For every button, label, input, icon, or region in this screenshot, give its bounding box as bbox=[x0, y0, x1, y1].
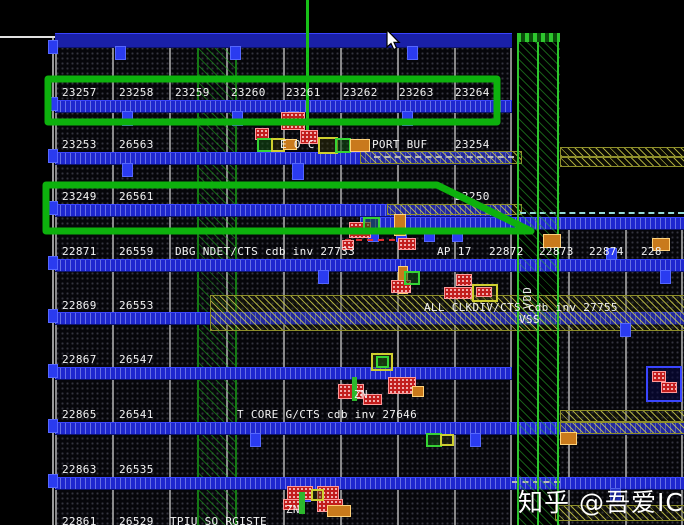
track-number: 22874 bbox=[589, 246, 624, 258]
strap-top-cap bbox=[517, 33, 560, 42]
route-bar bbox=[560, 410, 684, 422]
marker-cell bbox=[404, 271, 420, 285]
track-number: 23259 bbox=[175, 87, 210, 99]
eco-cell bbox=[661, 382, 677, 393]
marker-cell bbox=[560, 432, 577, 445]
marker-cell bbox=[311, 489, 324, 501]
instance-name: TPIU SO RGISTE bbox=[170, 516, 267, 525]
track-number: 26553 bbox=[119, 300, 154, 312]
instance-name: DBG NDET/CTS cdb inv 27733 bbox=[175, 246, 355, 258]
route-bar bbox=[560, 157, 684, 167]
route-bar bbox=[560, 147, 684, 157]
track-number: 22869 bbox=[62, 300, 97, 312]
ruler-line bbox=[0, 36, 57, 38]
track-number: 23263 bbox=[399, 87, 434, 99]
via-mark bbox=[122, 163, 133, 177]
via-mark bbox=[660, 270, 671, 284]
instance-name: E O C bbox=[280, 139, 315, 151]
via-mark bbox=[232, 111, 243, 126]
power-net-label: VSS bbox=[519, 314, 540, 326]
marker-cell bbox=[412, 386, 424, 397]
column-separator bbox=[510, 46, 512, 525]
column-separator bbox=[112, 46, 114, 525]
via-mark bbox=[407, 46, 418, 60]
column-separator bbox=[55, 46, 57, 525]
via-mark bbox=[292, 163, 304, 180]
via-mark bbox=[48, 309, 58, 323]
track-number: 23261 bbox=[286, 87, 321, 99]
strap-edge-line bbox=[517, 34, 519, 525]
via-mark bbox=[470, 433, 481, 447]
layout-canvas[interactable]: 23257 23258 23259 23260 23261 23262 2326… bbox=[0, 0, 684, 525]
route-bar bbox=[387, 204, 522, 215]
power-rail bbox=[55, 259, 684, 272]
net-trace-line bbox=[306, 0, 309, 142]
via-mark bbox=[48, 419, 58, 433]
track-number: 26559 bbox=[119, 246, 154, 258]
power-rail bbox=[55, 367, 512, 380]
via-mark bbox=[48, 364, 58, 378]
strap-mid-line bbox=[537, 34, 539, 525]
watermark-text: 知乎 @吾爱IC bbox=[518, 483, 684, 519]
marker-cell bbox=[335, 138, 351, 153]
eco-cell bbox=[281, 112, 305, 130]
via-mark bbox=[115, 46, 126, 60]
track-number: 23254 bbox=[455, 139, 490, 151]
via-mark bbox=[48, 40, 58, 54]
strap-edge-line bbox=[557, 34, 559, 525]
track-number: 23250 bbox=[455, 191, 490, 203]
instance-name: T CORE G/CTS cdb inv 27646 bbox=[237, 409, 417, 421]
route-bar bbox=[560, 422, 684, 434]
guide-dash-line bbox=[374, 156, 514, 158]
column-separator bbox=[340, 46, 342, 525]
marker-cell bbox=[363, 217, 380, 232]
via-mark bbox=[452, 228, 463, 242]
track-number: 26563 bbox=[119, 139, 154, 151]
eco-cell bbox=[476, 287, 492, 297]
track-number: 23260 bbox=[231, 87, 266, 99]
track-number: 26541 bbox=[119, 409, 154, 421]
via-mark bbox=[230, 46, 241, 60]
via-mark bbox=[402, 111, 413, 126]
via-mark bbox=[48, 474, 58, 488]
mouse-cursor-icon bbox=[386, 30, 404, 54]
eco-cell bbox=[652, 371, 666, 382]
track-number: 26529 bbox=[119, 516, 154, 525]
track-number: 22861 bbox=[62, 516, 97, 525]
via-mark bbox=[424, 228, 435, 242]
track-number: 22872 bbox=[489, 246, 524, 258]
marker-cell bbox=[376, 356, 389, 368]
track-number: 22867 bbox=[62, 354, 97, 366]
marker-cell bbox=[394, 214, 406, 236]
track-number: 22863 bbox=[62, 464, 97, 476]
eco-cell bbox=[456, 274, 472, 286]
pin-label: ZN bbox=[286, 504, 300, 516]
via-mark bbox=[250, 433, 261, 447]
track-number: 228 bbox=[641, 246, 662, 258]
track-number: 23249 bbox=[62, 191, 97, 203]
via-mark bbox=[620, 323, 631, 337]
via-mark bbox=[48, 201, 58, 215]
track-number: 26561 bbox=[119, 191, 154, 203]
eco-cell bbox=[398, 238, 416, 250]
track-number: 22873 bbox=[539, 246, 574, 258]
track-number: 23264 bbox=[455, 87, 490, 99]
power-net-label-vertical: VDD bbox=[521, 286, 534, 309]
via-mark bbox=[318, 270, 329, 284]
track-number: 23253 bbox=[62, 139, 97, 151]
via-mark bbox=[48, 256, 58, 270]
power-strap-hatched bbox=[197, 46, 237, 525]
instance-name: PORT BUF bbox=[372, 139, 427, 151]
track-number: 22871 bbox=[62, 246, 97, 258]
marker-cell bbox=[327, 505, 351, 517]
pin-label: ZN bbox=[354, 389, 368, 401]
track-number: 23257 bbox=[62, 87, 97, 99]
via-mark bbox=[48, 97, 58, 111]
marker-cell bbox=[440, 434, 454, 446]
marker-cell bbox=[350, 139, 370, 152]
track-number: 26535 bbox=[119, 464, 154, 476]
via-mark bbox=[48, 149, 58, 163]
column-separator bbox=[169, 46, 171, 525]
via-mark bbox=[122, 111, 133, 126]
instance-name: AP 17 bbox=[437, 246, 472, 258]
track-number: 23258 bbox=[119, 87, 154, 99]
track-number: 22865 bbox=[62, 409, 97, 421]
track-number: 23262 bbox=[343, 87, 378, 99]
marker-cell bbox=[299, 492, 305, 514]
track-number: 26547 bbox=[119, 354, 154, 366]
eco-cell bbox=[444, 287, 472, 299]
